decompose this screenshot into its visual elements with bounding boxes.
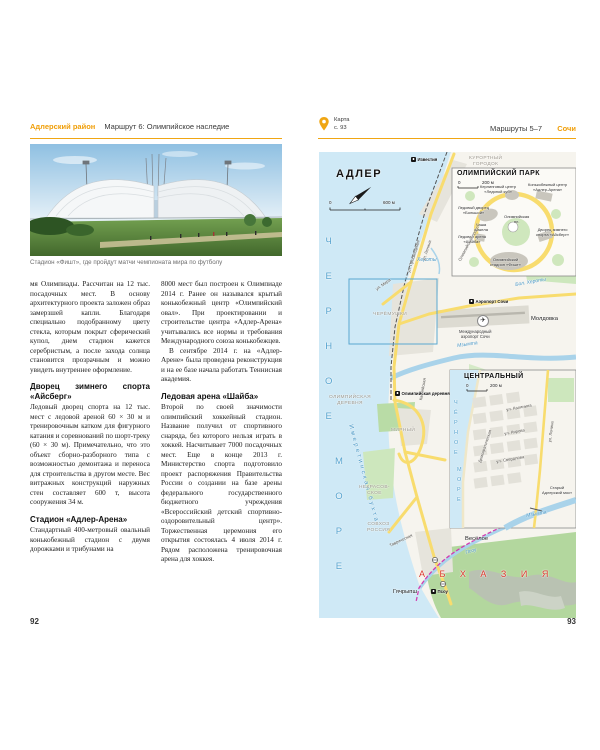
page-number-right: 93 — [567, 617, 576, 626]
paragraph: Ледовый дворец спорта на 12 тыс. мест с … — [30, 403, 150, 508]
adler-map: АДЛЕР0600 мЧ Е Р Н О ЕМ О Р ЕИмеретинска… — [319, 152, 576, 618]
routes-range: Маршруты 5–7 — [490, 124, 542, 133]
city-name: Сочи — [557, 124, 576, 133]
map-pin-icon — [318, 116, 330, 132]
heading-adler-arena: Стадион «Адлер-Арена» — [30, 515, 150, 525]
adler-map-graphic — [319, 152, 576, 618]
paragraph: 8000 мест был построен к Олимпиаде 2014 … — [161, 280, 282, 347]
map-reference: Карта с. 93 — [334, 117, 350, 132]
map-ref-page: с. 93 — [334, 125, 350, 133]
right-column: 8000 мест был построен к Олимпиаде 2014 … — [161, 280, 282, 565]
paragraph: Второй по своей значимости олимпийский х… — [161, 403, 282, 565]
heading-shayba: Ледовая арена «Шайба» — [161, 392, 282, 402]
page-number-left: 92 — [30, 617, 39, 626]
left-column: мя Олимпиады. Рассчитан на 12 тыс. посад… — [30, 280, 150, 555]
photo-caption: Стадион «Фишт», где пройдут матчи чемпио… — [30, 259, 282, 266]
paragraph: Стандартный 400-метровый овальный конько… — [30, 526, 150, 555]
route-title: Маршрут 6: Олимпийское наследие — [104, 122, 229, 131]
section-label: Адлерский район — [30, 122, 95, 131]
left-page-header: Адлерский район Маршрут 6: Олимпийское н… — [30, 122, 282, 131]
paragraph: В сентябре 2014 г. на «Адлер-Арене» была… — [161, 347, 282, 385]
book-spread: Адлерский район Маршрут 6: Олимпийское н… — [0, 0, 600, 750]
right-page-header: Карта с. 93 Маршруты 5–7 Сочи — [318, 116, 576, 138]
header-rule-right — [318, 138, 576, 139]
fisht-stadium-photo — [30, 144, 282, 256]
paragraph: мя Олимпиады. Рассчитан на 12 тыс. посад… — [30, 280, 150, 375]
heading-iceberg: Дворец зимнего спорта «Айсберг» — [30, 382, 150, 401]
map-ref-label: Карта — [334, 117, 350, 125]
header-rule-left — [30, 138, 282, 139]
